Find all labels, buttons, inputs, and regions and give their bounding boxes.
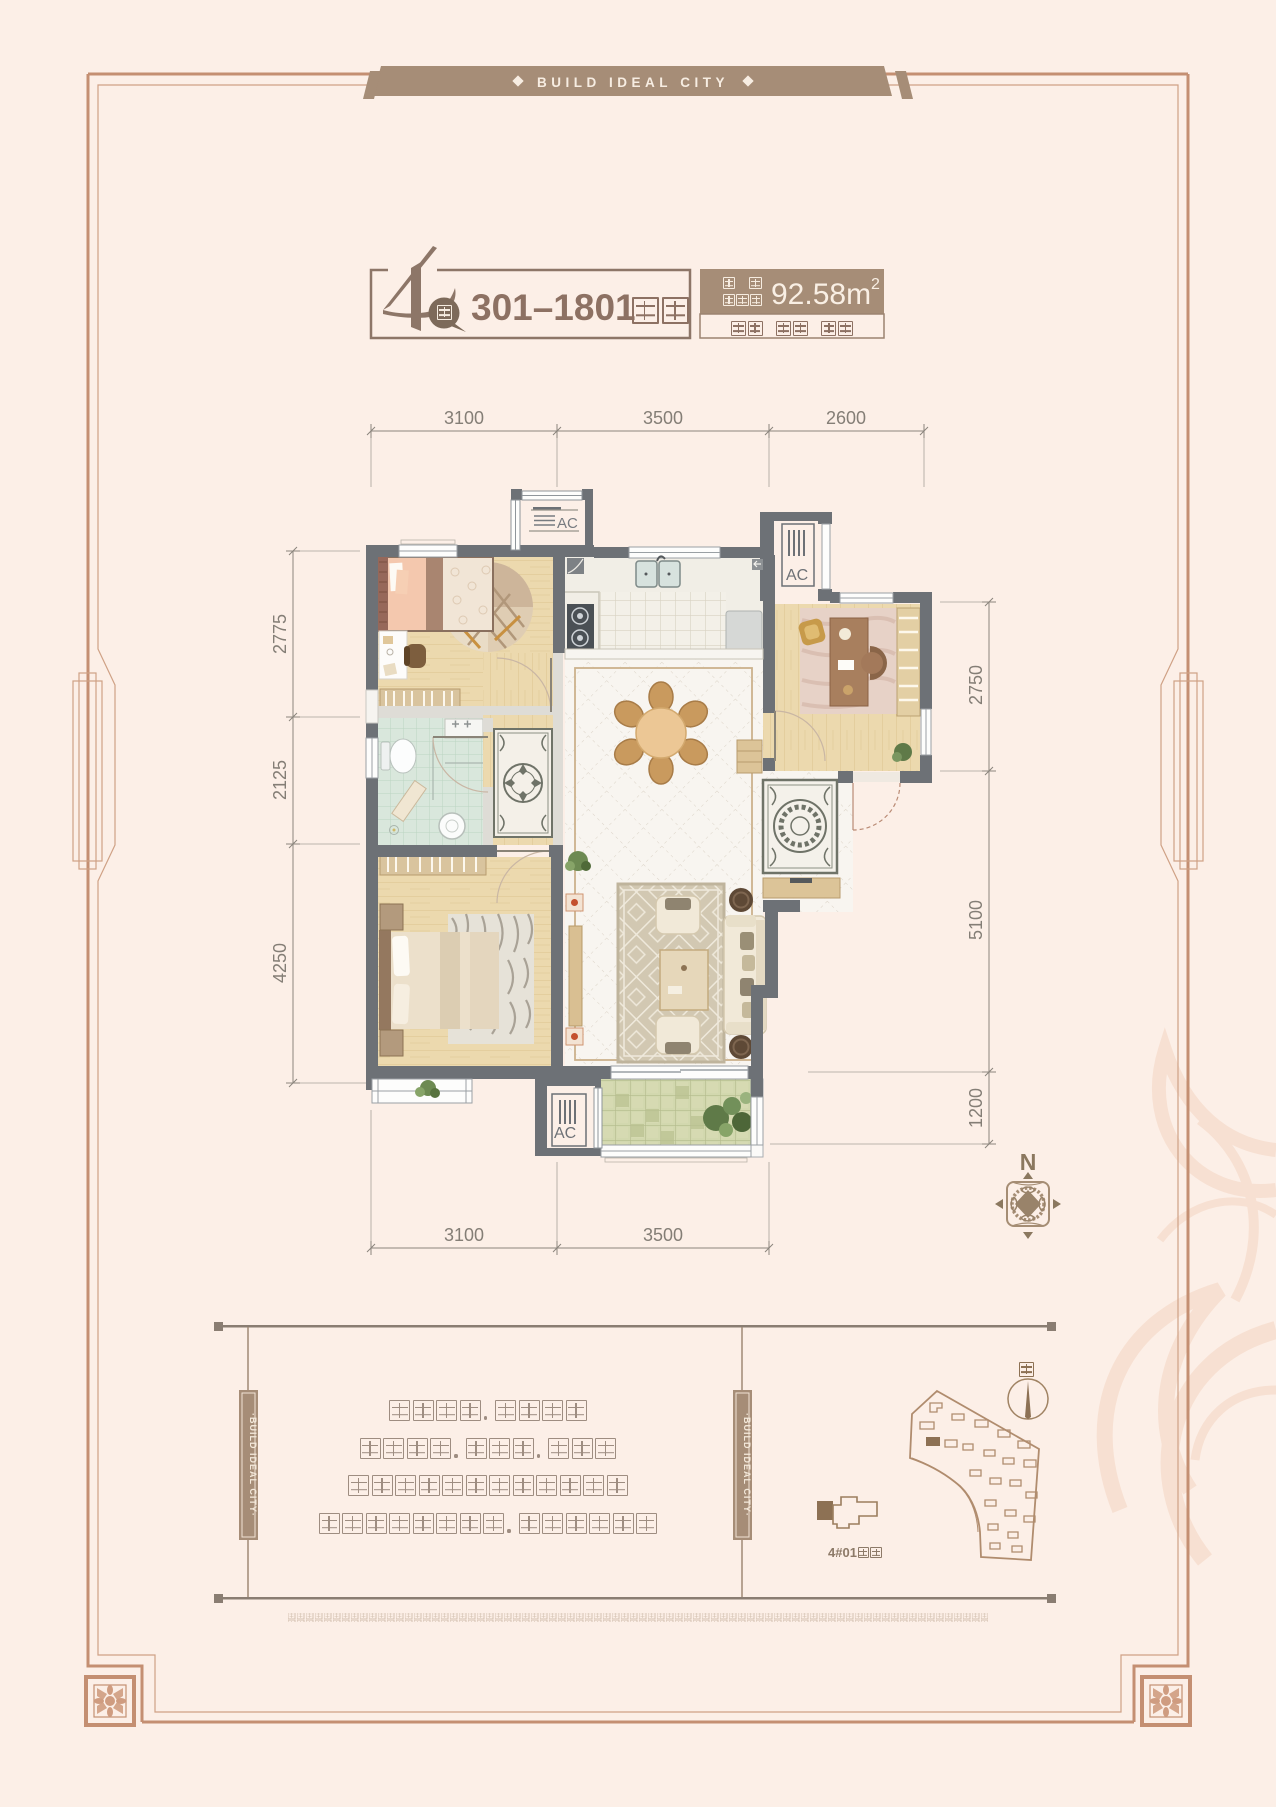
svg-text:AC: AC (557, 515, 578, 532)
svg-text:4250: 4250 (270, 943, 290, 983)
svg-text:2125: 2125 (270, 760, 290, 800)
svg-text:3100: 3100 (444, 408, 484, 428)
svg-text:5100: 5100 (966, 900, 986, 940)
svg-text:2775: 2775 (270, 614, 290, 654)
svg-text:301–1801: 301–1801 (471, 287, 636, 328)
svg-text:2750: 2750 (966, 665, 986, 705)
svg-text:BUILD IDEAL CITY: BUILD IDEAL CITY (537, 75, 729, 90)
svg-text:92.58m: 92.58m (771, 278, 871, 311)
svg-text:N: N (1020, 1149, 1037, 1175)
svg-text:3500: 3500 (643, 1225, 683, 1245)
svg-text:2600: 2600 (826, 408, 866, 428)
svg-text:AC: AC (786, 567, 808, 584)
svg-text:3500: 3500 (643, 408, 683, 428)
svg-text:3100: 3100 (444, 1225, 484, 1245)
svg-text:2: 2 (871, 276, 880, 293)
svg-text:1200: 1200 (966, 1088, 986, 1128)
svg-text:AC: AC (554, 1125, 576, 1142)
